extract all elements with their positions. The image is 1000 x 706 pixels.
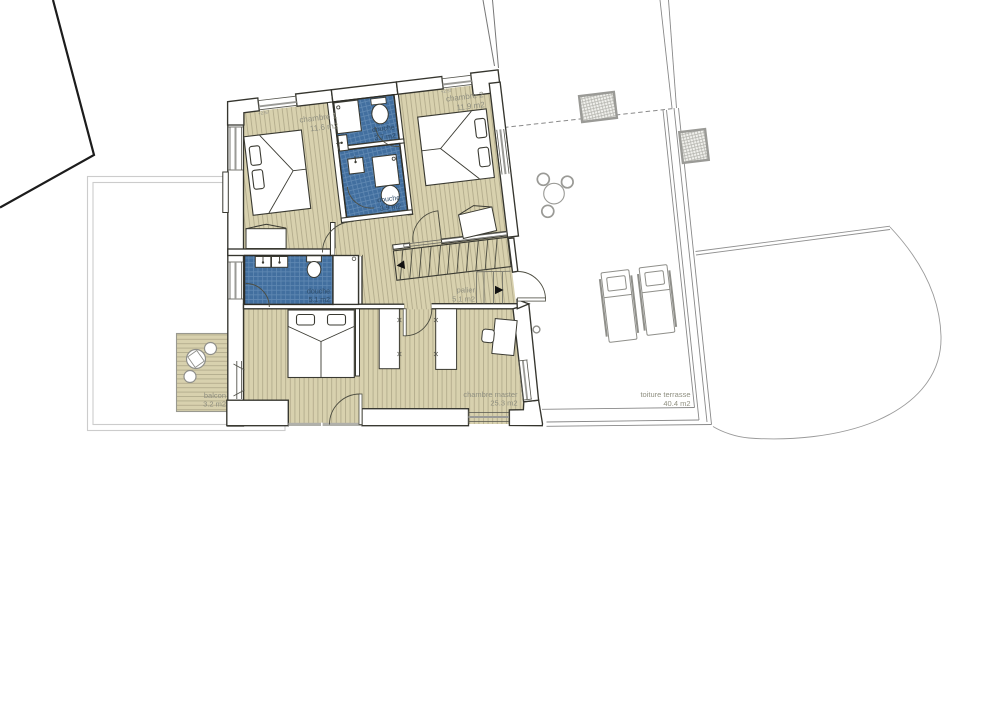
svg-text:5.1 m2: 5.1 m2 — [452, 295, 475, 304]
svg-text:3.2 m2: 3.2 m2 — [203, 400, 226, 409]
svg-text:5.1 m2: 5.1 m2 — [309, 297, 331, 304]
svg-text:palier: palier — [457, 286, 476, 295]
svg-text:25.3 m2: 25.3 m2 — [490, 399, 517, 408]
svg-text:douche: douche — [307, 289, 330, 296]
svg-text:toiture terrasse: toiture terrasse — [640, 390, 690, 399]
svg-text:40.4 m2: 40.4 m2 — [663, 399, 690, 408]
